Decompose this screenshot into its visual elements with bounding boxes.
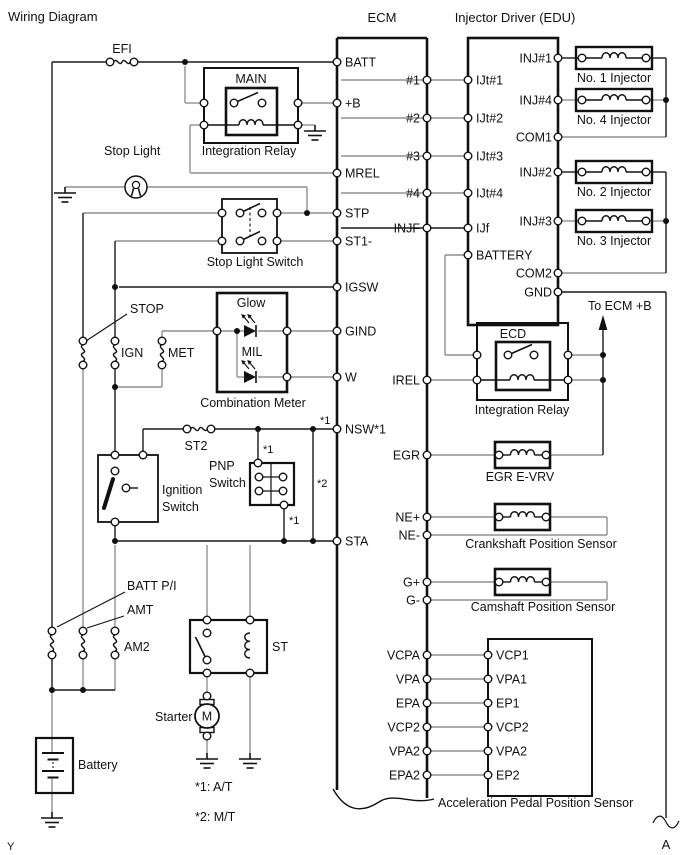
ecm-pin-irel: IREL bbox=[392, 374, 420, 388]
amt-fuse-label: AMT bbox=[127, 603, 154, 617]
ecm-pin-sta: STA bbox=[345, 535, 369, 549]
stop-fuse-label: STOP bbox=[130, 302, 164, 316]
glow-led-icon bbox=[241, 314, 256, 337]
ecm-bottom-wave bbox=[333, 789, 434, 809]
am2-fuse-icon bbox=[111, 627, 119, 659]
note-at: *1: A/T bbox=[195, 780, 233, 794]
camshaft-sensor-label: Camshaft Position Sensor bbox=[471, 600, 616, 614]
main-relay-coil bbox=[239, 120, 263, 125]
efi-fuse-label: EFI bbox=[112, 42, 131, 56]
ecm-pin-ne-minus: NE- bbox=[398, 529, 420, 543]
batt-pi-fuse-icon bbox=[48, 627, 56, 659]
batt-pi-fuse-label: BATT P/I bbox=[127, 579, 177, 593]
egr-evrv-label: EGR E-VRV bbox=[486, 470, 555, 484]
ignition-switch-lever bbox=[104, 479, 113, 508]
edu-pin-ijt4: IJt#4 bbox=[476, 187, 503, 201]
wiring-diagram-canvas: Wiring Diagram ECM Injector Driver (EDU)… bbox=[0, 0, 690, 855]
app-pin-ep2: EP2 bbox=[496, 769, 520, 783]
ecm-pin-ne-plus: NE+ bbox=[395, 511, 420, 525]
edu-pin-inj1: INJ#1 bbox=[519, 52, 552, 66]
edu-pin-battery: BATTERY bbox=[476, 249, 533, 263]
mil-label: MIL bbox=[242, 345, 263, 359]
app-sensor-label: Acceleration Pedal Position Sensor bbox=[438, 796, 633, 810]
stop-light-label: Stop Light bbox=[104, 144, 161, 158]
ecm-pin-stp: STP bbox=[345, 207, 369, 221]
efi-fuse-icon bbox=[106, 58, 138, 66]
page-title: Wiring Diagram bbox=[8, 9, 98, 24]
battery-label: Battery bbox=[78, 758, 118, 772]
main-relay-inner-label: MAIN bbox=[235, 72, 266, 86]
stop-light-switch-box bbox=[222, 199, 277, 253]
met-fuse-label: MET bbox=[168, 346, 195, 360]
edu-pin-ijt1: IJt#1 bbox=[476, 74, 503, 88]
starter-m-label: M bbox=[202, 710, 212, 724]
ecm-pin-mrel: MREL bbox=[345, 167, 380, 181]
star1-nsw: *1 bbox=[320, 415, 330, 427]
app-pin-vcp1: VCP1 bbox=[496, 649, 529, 663]
ecm-pin-vcp2: VCP2 bbox=[387, 721, 420, 735]
ecm-pin-w: W bbox=[345, 371, 357, 385]
ecm-pin-injf: INJF bbox=[394, 222, 421, 236]
st-relay-switch-blade bbox=[196, 637, 206, 658]
combination-meter-label: Combination Meter bbox=[200, 396, 306, 410]
ecd-relay-label: Integration Relay bbox=[475, 403, 570, 417]
edu-pin-com1: COM1 bbox=[516, 131, 552, 145]
ecm-pin-vcpa: VCPA bbox=[387, 649, 421, 663]
ecm-pin-g-plus: G+ bbox=[403, 576, 420, 590]
star2-wire: *2 bbox=[317, 478, 327, 490]
ign-fuse-icon bbox=[111, 337, 119, 369]
ecm-pin-2: #2 bbox=[406, 112, 420, 126]
to-ecm-b-label: To ECM +B bbox=[588, 299, 652, 313]
pnp-switch-box bbox=[250, 463, 294, 505]
edu-pin-gnd: GND bbox=[524, 286, 552, 300]
ecd-relay-inner-label: ECD bbox=[500, 327, 526, 341]
ecm-pin-plus-b: +B bbox=[345, 97, 361, 111]
page-marker: Y bbox=[7, 841, 15, 853]
ecm-pin-egr: EGR bbox=[393, 449, 420, 463]
ecm-pin-nsw: NSW*1 bbox=[345, 423, 386, 437]
starter-label: Starter bbox=[155, 710, 193, 724]
ecm-pin-vpa2: VPA2 bbox=[389, 745, 420, 759]
edu-header: Injector Driver (EDU) bbox=[455, 10, 576, 25]
edu-pin-com2: COM2 bbox=[516, 267, 552, 281]
st-relay-coil bbox=[245, 633, 250, 658]
st2-fuse-icon bbox=[183, 425, 215, 433]
met-fuse-icon bbox=[158, 337, 166, 369]
crankshaft-sensor-label: Crankshaft Position Sensor bbox=[465, 537, 616, 551]
ecm-pin-g-minus: G- bbox=[406, 594, 420, 608]
injector-1-label: No. 1 Injector bbox=[577, 71, 651, 85]
ecm-pin-st1: ST1- bbox=[345, 235, 372, 249]
ecm-pin-batt: BATT bbox=[345, 56, 376, 70]
ecd-relay-coil bbox=[510, 375, 534, 380]
edu-pin-inj3: INJ#3 bbox=[519, 215, 552, 229]
injector-3-label: No. 3 Injector bbox=[577, 234, 651, 248]
main-relay-ground-icon bbox=[304, 125, 326, 140]
app-pin-vpa1: VPA1 bbox=[496, 673, 527, 687]
st-coil-ground-icon bbox=[239, 753, 261, 768]
to-ecm-b-arrowhead bbox=[599, 315, 608, 330]
edu-pin-inj4: INJ#4 bbox=[519, 94, 552, 108]
st2-fuse-label: ST2 bbox=[185, 439, 208, 453]
app-pin-vpa2: VPA2 bbox=[496, 745, 527, 759]
ignition-switch-label-2: Switch bbox=[162, 500, 199, 514]
ecm-pin-igsw: IGSW bbox=[345, 281, 379, 295]
ecm-pin-3: #3 bbox=[406, 150, 420, 164]
edu-pin-ijt2: IJt#2 bbox=[476, 112, 503, 126]
pnp-switch-label-2: Switch bbox=[209, 476, 246, 490]
ign-fuse-label: IGN bbox=[121, 346, 143, 360]
glow-label: Glow bbox=[237, 296, 266, 310]
battery-box bbox=[36, 738, 73, 793]
edu-pin-ijf: IJf bbox=[476, 222, 490, 236]
edu-pin-inj2: INJ#2 bbox=[519, 166, 552, 180]
amt-fuse-icon bbox=[79, 627, 87, 659]
star1-pnp-bottom: *1 bbox=[289, 515, 299, 527]
app-pin-ep1: EP1 bbox=[496, 697, 520, 711]
stop-fuse-icon bbox=[79, 337, 87, 369]
starter-ground-icon bbox=[196, 753, 218, 768]
pnp-switch-label-1: PNP bbox=[209, 459, 235, 473]
am2-fuse-label: AM2 bbox=[124, 640, 150, 654]
battery-ground-icon bbox=[41, 812, 63, 827]
stop-light-ground-icon bbox=[54, 187, 76, 202]
st-relay-box bbox=[190, 620, 267, 673]
ecm-pin-1: #1 bbox=[406, 74, 420, 88]
stop-light-bulb bbox=[125, 176, 147, 198]
ignition-switch-label-1: Ignition bbox=[162, 483, 202, 497]
connector-a-label: A bbox=[662, 837, 671, 852]
star1-pnp-top: *1 bbox=[263, 444, 273, 456]
st-relay-label: ST bbox=[272, 640, 288, 654]
ecm-header: ECM bbox=[368, 10, 397, 25]
ecm-pin-epa: EPA bbox=[396, 697, 421, 711]
injector-2-label: No. 2 Injector bbox=[577, 185, 651, 199]
mil-led-icon bbox=[241, 360, 256, 383]
ecm-pin-epa2: EPA2 bbox=[389, 769, 420, 783]
stop-light-switch-label: Stop Light Switch bbox=[207, 255, 304, 269]
ecm-pin-gind: GIND bbox=[345, 325, 376, 339]
note-mt: *2: M/T bbox=[195, 810, 236, 824]
main-relay-label: Integration Relay bbox=[202, 144, 297, 158]
ecm-pin-vpa: VPA bbox=[396, 673, 421, 687]
edu-pin-ijt3: IJt#3 bbox=[476, 150, 503, 164]
injector-4-label: No. 4 Injector bbox=[577, 113, 651, 127]
app-pin-vcp2: VCP2 bbox=[496, 721, 529, 735]
ecm-pin-4: #4 bbox=[406, 187, 420, 201]
